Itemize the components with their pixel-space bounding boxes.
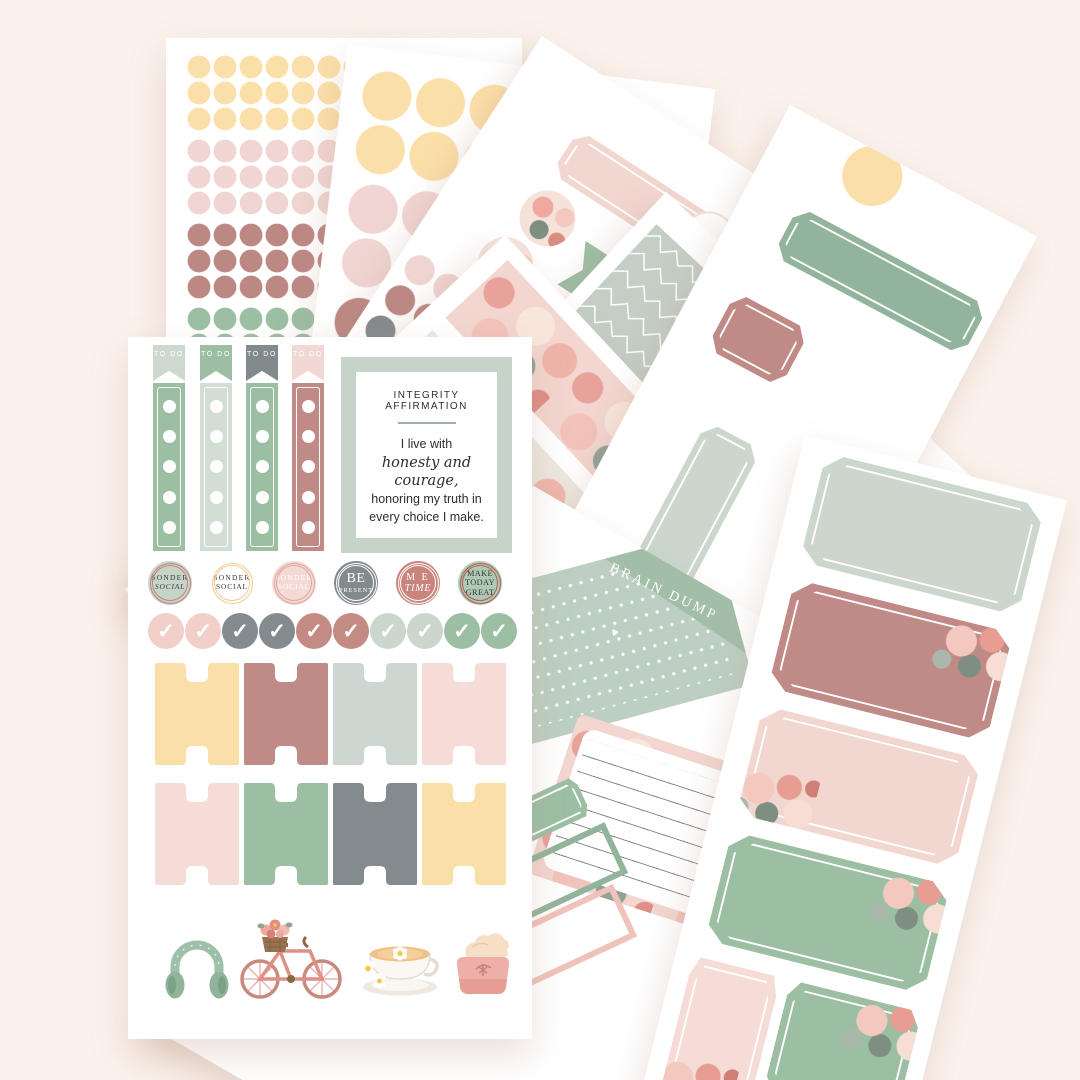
round-sticker-sonder-social: SONDERSOCIAL [210,561,254,605]
chamomile-tea-icon [352,923,448,1001]
checkbox-dot [256,491,269,504]
todo-flag-header: TO DO [200,345,232,381]
checkbox-dot [163,400,176,413]
page-flag-sticker [333,783,417,885]
page-flag-row [128,783,532,885]
round-sticker-sonder-social: SONDERSOCIAL [148,561,192,605]
page-flag-sticker [155,663,239,765]
checkbox-dot [302,400,315,413]
check-circle-sticker: ✓ [444,613,480,649]
check-circle-sticker: ✓ [296,613,332,649]
checkbox-dot [256,400,269,413]
bicycle-flower-basket-icon [232,915,350,1007]
checkbox-dot [256,430,269,443]
checkbox-dot [210,430,223,443]
todo-body [153,383,185,551]
sticker-kit-product-image: BRAIN DUMP ♥ Times I Stayed True to Myse… [0,0,1080,1080]
todo-flag-header: TO DO [153,345,185,381]
checkbox-dot [163,521,176,534]
check-circle-sticker: ✓ [185,613,221,649]
todo-label: TO DO [154,351,184,358]
check-circle-sticker: ✓ [222,613,258,649]
checkbox-dot [210,460,223,473]
round-sticker-me-time: M ETIME [396,561,440,605]
cream-jar-icon [450,927,516,1001]
todo-body [292,383,324,551]
checkbox-dot [210,491,223,504]
tall-ticket-pink-outline [657,956,781,1080]
label-inner-border [714,300,802,380]
page-flag-sticker [244,663,328,765]
affirmation-card-sticker: INTEGRITY AFFIRMATION I live with honest… [341,357,512,553]
label-sticker-green [772,206,988,356]
checkbox-dot [256,521,269,534]
checkbox-dot [163,430,176,443]
check-circle-sticker: ✓ [481,613,517,649]
todo-label: TO DO [247,351,277,358]
affirmation-card-inner: INTEGRITY AFFIRMATION I live with honest… [356,372,497,538]
checkbox-dot [302,521,315,534]
todo-body [246,383,278,551]
todo-body [200,383,232,551]
ticket-sticker-green-floral [763,980,922,1080]
round-sticker-sonder-social: SONDERSOCIAL [272,561,316,605]
check-circle-sticker: ✓ [407,613,443,649]
checkbox-dot [210,521,223,534]
todo-label: TO DO [201,351,231,358]
divider-line [398,422,456,424]
affirmation-line: honoring my truth in [356,491,497,509]
todo-label: TO DO [293,351,323,358]
check-circle-sticker: ✓ [148,613,184,649]
checkbox-dot [302,430,315,443]
headphones-icon [161,929,233,1007]
shield-label-rose [706,292,810,388]
check-circle-sticker: ✓ [370,613,406,649]
page-flag-sticker [244,783,328,885]
check-circle-sticker: ✓ [259,613,295,649]
label-inner-border [780,214,980,348]
page-flag-sticker [422,663,506,765]
checkbox-dot [163,460,176,473]
round-sticker-be-present: BEPRESENT [334,561,378,605]
check-circle-sticker: ✓ [333,613,369,649]
checkbox-dot [256,460,269,473]
affirmation-script-line: honesty and courage, [356,454,497,492]
sheet-weekly-kit: TO DO TO DO TO DO TO DO INTEG [128,337,532,1039]
checkbox-dot [302,460,315,473]
checkbox-dot [302,491,315,504]
todo-flag-header: TO DO [246,345,278,381]
page-flag-sticker [333,663,417,765]
page-flag-row [128,663,532,765]
checkbox-dot [210,400,223,413]
dot-sticker-peach-large [832,135,913,216]
round-sticker-make-today-great: MAKETODAYGREAT [458,561,502,605]
todo-flag-header: TO DO [292,345,324,381]
page-flag-sticker [155,783,239,885]
checkbox-dot [163,491,176,504]
affirmation-title: INTEGRITY AFFIRMATION [356,390,497,412]
affirmation-line: every choice I make. [356,509,497,527]
ticket-inner-border [808,461,1036,607]
affirmation-line: I live with [356,436,497,454]
page-flag-sticker [422,783,506,885]
